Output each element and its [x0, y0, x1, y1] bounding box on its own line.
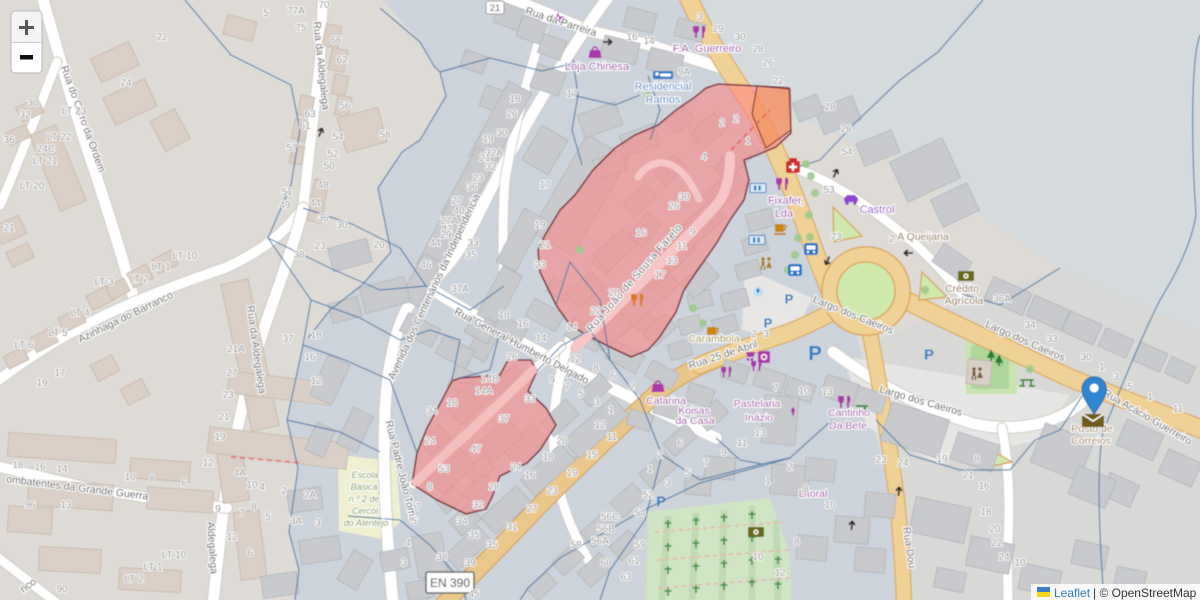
svg-text:LT 2: LT 2 — [124, 574, 144, 585]
svg-text:5: 5 — [265, 512, 271, 523]
svg-text:37: 37 — [498, 414, 510, 425]
svg-text:LT 3: LT 3 — [94, 277, 114, 288]
svg-text:Lda: Lda — [775, 208, 794, 220]
svg-text:11: 11 — [677, 241, 688, 252]
svg-text:1: 1 — [745, 136, 751, 147]
svg-text:73: 73 — [830, 232, 842, 243]
svg-text:24: 24 — [120, 78, 132, 89]
svg-text:Escola: Escola — [351, 470, 378, 480]
svg-text:17: 17 — [539, 180, 551, 191]
svg-text:Da Bete: Da Bete — [829, 420, 867, 432]
svg-text:P: P — [656, 493, 665, 509]
svg-text:20: 20 — [373, 240, 385, 251]
svg-text:2: 2 — [751, 329, 757, 340]
svg-text:9: 9 — [721, 448, 727, 459]
svg-text:3: 3 — [594, 397, 600, 408]
svg-text:14B: 14B — [481, 374, 499, 385]
svg-text:14A: 14A — [475, 386, 493, 397]
svg-text:21: 21 — [490, 3, 501, 14]
svg-text:LT 6: LT 6 — [14, 340, 34, 351]
svg-text:LT 4: LT 4 — [70, 308, 90, 319]
svg-text:9: 9 — [549, 375, 555, 386]
svg-text:24C: 24C — [37, 144, 55, 155]
svg-text:11: 11 — [1173, 404, 1184, 415]
svg-text:LT 5: LT 5 — [48, 328, 68, 339]
svg-text:16: 16 — [635, 228, 647, 239]
svg-text:5: 5 — [685, 468, 691, 479]
svg-text:48: 48 — [317, 180, 329, 191]
svg-text:9: 9 — [215, 504, 221, 515]
svg-text:1: 1 — [765, 476, 771, 487]
svg-text:3: 3 — [763, 329, 769, 340]
svg-text:17: 17 — [654, 270, 666, 281]
svg-text:2: 2 — [733, 114, 739, 125]
svg-text:8: 8 — [251, 502, 257, 513]
svg-text:20: 20 — [989, 524, 1001, 535]
svg-text:33: 33 — [467, 238, 479, 249]
svg-text:P: P — [924, 346, 934, 363]
svg-text:18: 18 — [310, 330, 322, 341]
svg-text:62: 62 — [336, 55, 348, 66]
svg-text:10: 10 — [124, 472, 136, 483]
svg-text:10: 10 — [798, 386, 810, 397]
svg-text:49: 49 — [279, 200, 291, 211]
svg-text:23: 23 — [314, 241, 326, 252]
svg-text:75: 75 — [295, 23, 307, 34]
svg-text:26: 26 — [840, 124, 852, 135]
svg-text:12: 12 — [310, 376, 322, 387]
svg-text:35: 35 — [465, 250, 477, 261]
svg-text:12: 12 — [594, 420, 606, 431]
svg-text:57: 57 — [286, 143, 298, 154]
svg-text:EN 390: EN 390 — [430, 576, 470, 590]
svg-text:Crédito: Crédito — [945, 283, 979, 295]
svg-text:30: 30 — [496, 128, 508, 139]
svg-text:31: 31 — [506, 522, 518, 533]
svg-text:21: 21 — [539, 240, 551, 251]
svg-text:24: 24 — [998, 552, 1010, 563]
svg-text:3: 3 — [697, 12, 703, 23]
svg-text:11: 11 — [737, 438, 748, 449]
svg-text:6: 6 — [610, 371, 616, 382]
svg-text:30: 30 — [1080, 352, 1092, 363]
svg-text:23: 23 — [222, 390, 234, 401]
svg-text:3: 3 — [401, 558, 407, 569]
svg-text:2A: 2A — [304, 490, 317, 501]
svg-text:19: 19 — [482, 134, 494, 145]
svg-text:LT 1: LT 1 — [151, 262, 171, 273]
svg-text:16: 16 — [524, 470, 536, 481]
svg-text:24: 24 — [897, 458, 909, 469]
svg-text:34: 34 — [456, 516, 468, 527]
svg-text:21: 21 — [479, 153, 491, 164]
svg-text:34: 34 — [1024, 320, 1036, 331]
svg-text:3: 3 — [665, 478, 671, 489]
svg-text:3: 3 — [1113, 372, 1119, 383]
svg-text:8: 8 — [794, 537, 800, 548]
svg-text:36: 36 — [3, 135, 15, 146]
svg-text:22: 22 — [590, 306, 602, 317]
svg-text:26: 26 — [506, 109, 518, 120]
svg-text:53: 53 — [438, 464, 450, 475]
svg-text:LT 22: LT 22 — [47, 132, 72, 143]
svg-text:20: 20 — [556, 436, 568, 447]
svg-text:16: 16 — [978, 481, 990, 492]
svg-text:1: 1 — [647, 464, 653, 475]
svg-text:24: 24 — [510, 462, 522, 473]
svg-text:5: 5 — [411, 516, 417, 527]
svg-text:6: 6 — [247, 548, 253, 559]
svg-text:11: 11 — [607, 432, 618, 443]
svg-text:28: 28 — [488, 482, 500, 493]
svg-text:| © OpenStreetMap: | © OpenStreetMap — [1093, 586, 1197, 600]
svg-text:35: 35 — [486, 540, 498, 551]
svg-text:A Queijaria: A Queijaria — [897, 231, 949, 243]
svg-text:4: 4 — [701, 152, 707, 163]
svg-text:19: 19 — [36, 378, 48, 389]
svg-text:12: 12 — [774, 568, 786, 579]
svg-text:10: 10 — [824, 500, 836, 511]
svg-text:9: 9 — [690, 227, 696, 238]
svg-text:P: P — [785, 292, 794, 307]
svg-text:4A: 4A — [234, 468, 247, 479]
svg-text:LT 10: LT 10 — [173, 251, 198, 262]
svg-text:4: 4 — [259, 482, 265, 493]
svg-text:28: 28 — [752, 44, 764, 55]
svg-text:10: 10 — [1014, 558, 1026, 569]
svg-text:96: 96 — [24, 500, 36, 511]
svg-text:18: 18 — [498, 310, 510, 321]
svg-text:58: 58 — [379, 130, 391, 141]
svg-text:2: 2 — [889, 234, 895, 245]
svg-text:7: 7 — [564, 382, 570, 393]
svg-text:13: 13 — [754, 428, 766, 439]
svg-text:26: 26 — [668, 201, 680, 212]
svg-text:63: 63 — [620, 572, 632, 583]
svg-text:26: 26 — [506, 352, 518, 363]
svg-text:38: 38 — [436, 552, 448, 563]
svg-text:14: 14 — [566, 322, 578, 333]
svg-text:19: 19 — [936, 454, 948, 465]
svg-text:22: 22 — [156, 32, 168, 43]
svg-text:14: 14 — [535, 333, 547, 344]
svg-text:56: 56 — [339, 101, 351, 112]
svg-text:21: 21 — [3, 223, 15, 234]
svg-text:54: 54 — [332, 132, 344, 143]
svg-text:LT 23: LT 23 — [62, 106, 87, 117]
svg-text:29: 29 — [712, 24, 724, 35]
svg-text:P: P — [808, 343, 821, 365]
svg-text:16: 16 — [34, 462, 46, 473]
svg-text:da Casa: da Casa — [675, 415, 714, 427]
svg-text:23: 23 — [546, 486, 558, 497]
svg-text:8: 8 — [803, 484, 809, 495]
svg-text:12: 12 — [202, 458, 214, 469]
svg-text:21A: 21A — [227, 344, 245, 355]
svg-text:2: 2 — [629, 382, 635, 393]
svg-text:30: 30 — [336, 220, 348, 231]
svg-text:58: 58 — [570, 540, 582, 551]
svg-text:3A: 3A — [290, 516, 303, 527]
svg-text:9A: 9A — [678, 67, 691, 78]
svg-text:18: 18 — [12, 460, 24, 471]
svg-text:27: 27 — [451, 196, 463, 207]
svg-text:52: 52 — [327, 149, 339, 160]
svg-text:56B: 56B — [597, 524, 615, 535]
svg-text:8: 8 — [427, 482, 433, 493]
svg-text:20: 20 — [608, 288, 620, 299]
svg-text:16: 16 — [304, 352, 316, 363]
svg-text:52: 52 — [642, 490, 654, 501]
svg-text:53: 53 — [823, 185, 835, 196]
svg-text:7: 7 — [773, 383, 779, 394]
svg-text:22: 22 — [772, 76, 784, 87]
svg-text:30: 30 — [734, 32, 746, 43]
svg-text:8: 8 — [149, 474, 155, 485]
svg-text:Agrícola: Agrícola — [945, 295, 984, 307]
svg-text:21: 21 — [962, 470, 974, 481]
svg-text:50: 50 — [323, 161, 335, 172]
svg-text:16: 16 — [626, 32, 638, 43]
svg-text:Carambola: Carambola — [688, 333, 740, 345]
svg-text:18: 18 — [509, 94, 521, 105]
svg-text:5: 5 — [1127, 382, 1133, 393]
svg-text:23: 23 — [534, 260, 546, 271]
svg-text:Correios: Correios — [1071, 435, 1111, 447]
svg-text:37A: 37A — [451, 284, 469, 295]
svg-text:Cantinho: Cantinho — [828, 407, 870, 419]
svg-text:14: 14 — [56, 464, 68, 475]
svg-text:Leaflet: Leaflet — [1054, 586, 1091, 600]
svg-text:61: 61 — [299, 121, 311, 132]
svg-text:63: 63 — [304, 109, 316, 120]
svg-text:13: 13 — [666, 256, 678, 267]
svg-text:13: 13 — [821, 387, 833, 398]
svg-text:do Alentejo: do Alentejo — [344, 518, 389, 528]
svg-text:18: 18 — [542, 452, 554, 463]
svg-text:Castrol: Castrol — [860, 204, 895, 216]
svg-text:8: 8 — [974, 454, 980, 465]
svg-text:56A: 56A — [591, 536, 609, 547]
svg-text:19: 19 — [566, 468, 578, 479]
svg-text:LT 10: LT 10 — [162, 550, 187, 561]
svg-text:21: 21 — [218, 412, 230, 423]
svg-text:1: 1 — [608, 405, 614, 416]
svg-text:32: 32 — [19, 110, 31, 121]
svg-text:6: 6 — [677, 438, 683, 449]
svg-text:15: 15 — [586, 450, 598, 461]
svg-text:1: 1 — [1099, 362, 1105, 373]
svg-text:36A: 36A — [993, 294, 1011, 305]
svg-text:18: 18 — [980, 507, 992, 518]
svg-text:4: 4 — [405, 538, 411, 549]
svg-text:LT 20: LT 20 — [20, 181, 45, 192]
svg-text:37: 37 — [282, 334, 294, 345]
svg-text:23: 23 — [472, 173, 484, 184]
svg-text:60: 60 — [600, 558, 612, 569]
svg-text:Loja Chinesa: Loja Chinesa — [565, 61, 630, 73]
svg-text:47: 47 — [470, 444, 482, 455]
svg-text:22: 22 — [991, 538, 1003, 549]
svg-text:27A: 27A — [440, 216, 458, 227]
svg-text:14: 14 — [643, 36, 655, 47]
svg-text:Fixafer,: Fixafer, — [768, 195, 804, 207]
svg-text:17: 17 — [54, 368, 66, 379]
svg-text:16: 16 — [517, 319, 529, 330]
svg-text:Ramos: Ramos — [646, 94, 681, 106]
svg-text:12: 12 — [226, 532, 238, 543]
svg-text:6: 6 — [181, 478, 187, 489]
svg-text:56C: 56C — [601, 512, 619, 523]
svg-text:19: 19 — [534, 220, 546, 231]
svg-text:30: 30 — [27, 98, 39, 109]
svg-text:44: 44 — [309, 198, 321, 209]
svg-text:5: 5 — [578, 389, 584, 400]
svg-text:28: 28 — [824, 102, 836, 113]
svg-text:Básica: Básica — [350, 482, 377, 492]
svg-text:33: 33 — [1046, 334, 1058, 345]
svg-text:3: 3 — [315, 518, 321, 529]
svg-text:23: 23 — [875, 455, 887, 466]
svg-text:61: 61 — [628, 556, 640, 567]
svg-text:34: 34 — [426, 406, 438, 417]
svg-text:18: 18 — [446, 398, 458, 409]
svg-text:32: 32 — [472, 500, 484, 511]
svg-text:30: 30 — [678, 192, 690, 203]
svg-text:10: 10 — [752, 552, 764, 563]
svg-text:90: 90 — [56, 584, 68, 595]
svg-text:26: 26 — [762, 58, 774, 69]
svg-text:66: 66 — [330, 35, 342, 46]
svg-text:F.A. Guerreiro: F.A. Guerreiro — [673, 43, 741, 55]
svg-text:27: 27 — [226, 368, 238, 379]
svg-text:13: 13 — [60, 500, 72, 511]
svg-text:51: 51 — [281, 187, 293, 198]
svg-text:70: 70 — [318, 0, 330, 11]
svg-text:5: 5 — [263, 8, 269, 19]
svg-text:Inázio: Inázio — [745, 412, 773, 424]
svg-text:Cercol: Cercol — [352, 506, 379, 516]
svg-text:2: 2 — [281, 486, 287, 497]
svg-text:33: 33 — [524, 394, 536, 405]
svg-text:45: 45 — [468, 589, 480, 600]
svg-text:2: 2 — [657, 450, 663, 461]
svg-text:35: 35 — [468, 530, 480, 541]
svg-text:n.º 2 de: n.º 2 de — [349, 494, 380, 504]
svg-text:54: 54 — [634, 508, 646, 519]
svg-text:LT 2: LT 2 — [129, 274, 149, 285]
svg-text:7: 7 — [239, 508, 245, 519]
svg-text:29: 29 — [440, 230, 452, 241]
svg-text:LT 1: LT 1 — [143, 562, 163, 573]
svg-text:38: 38 — [293, 250, 305, 261]
svg-text:2: 2 — [787, 462, 793, 473]
svg-text:27: 27 — [526, 504, 538, 515]
svg-text:10: 10 — [246, 480, 258, 491]
svg-text:7: 7 — [703, 458, 709, 469]
svg-text:36: 36 — [317, 213, 329, 224]
svg-text:1: 1 — [1147, 392, 1153, 403]
svg-text:8: 8 — [593, 363, 599, 374]
svg-text:59: 59 — [634, 540, 646, 551]
svg-text:19: 19 — [214, 432, 226, 443]
svg-text:17: 17 — [566, 89, 578, 100]
svg-text:44: 44 — [429, 238, 441, 249]
svg-text:Pastelaria: Pastelaria — [734, 398, 781, 410]
svg-text:7: 7 — [415, 502, 421, 513]
svg-text:39: 39 — [464, 558, 476, 569]
svg-text:77A: 77A — [287, 6, 305, 17]
svg-text:24: 24 — [424, 436, 436, 447]
svg-text:2: 2 — [719, 118, 725, 129]
svg-text:LT 21: LT 21 — [33, 156, 58, 167]
svg-text:46: 46 — [420, 260, 432, 271]
svg-text:12: 12 — [569, 354, 581, 365]
svg-text:Residencial: Residencial — [635, 81, 692, 93]
svg-text:54: 54 — [841, 147, 853, 158]
